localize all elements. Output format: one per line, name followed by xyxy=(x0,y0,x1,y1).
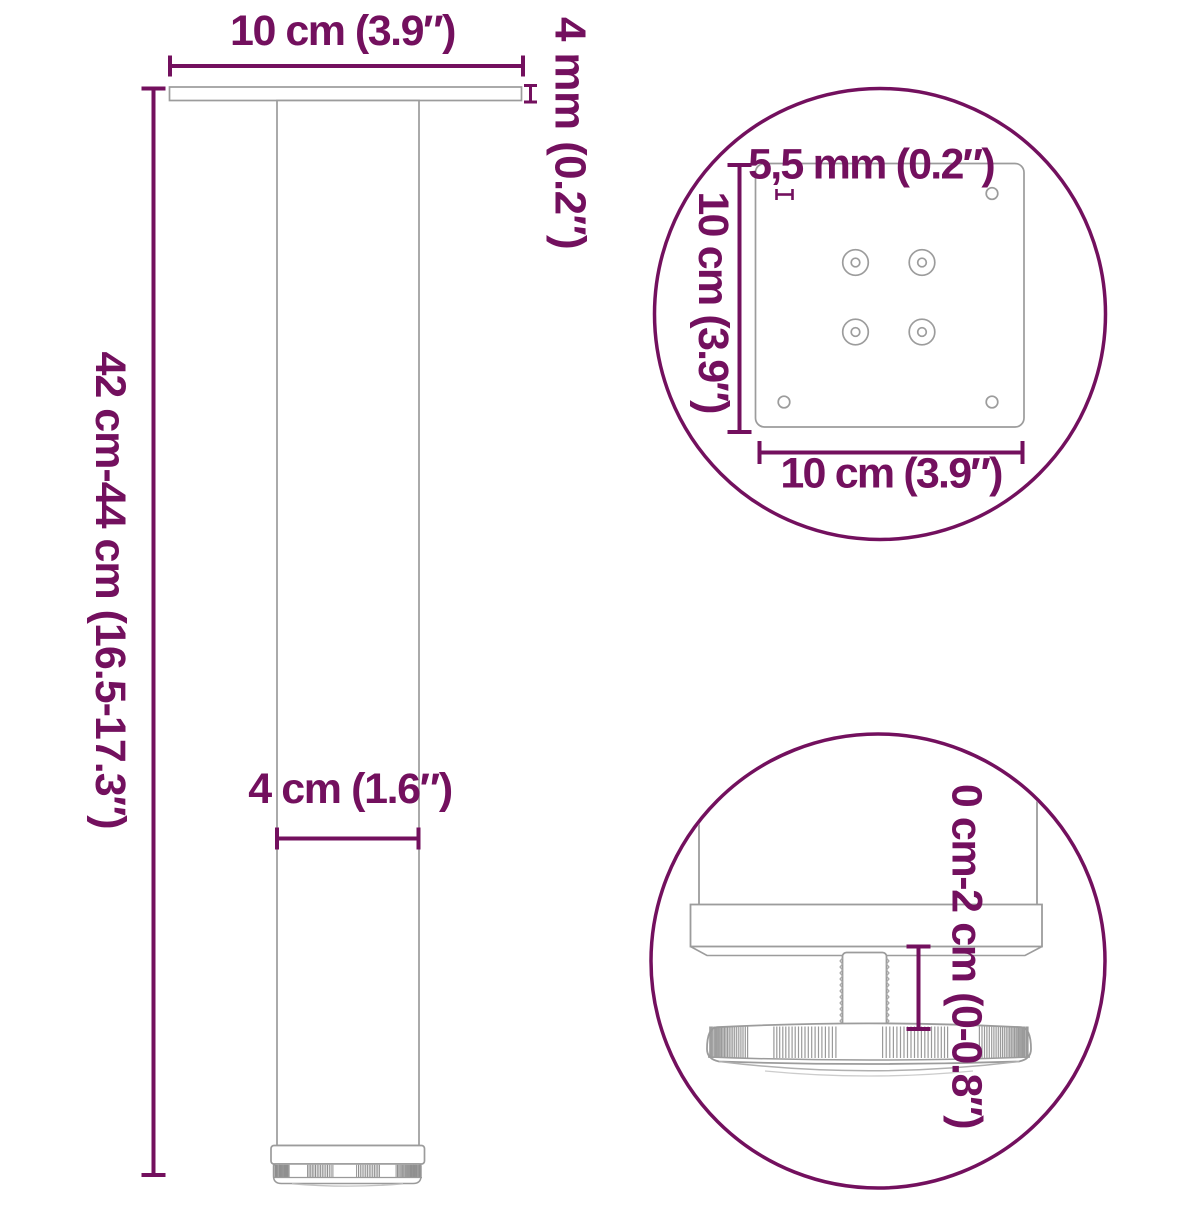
svg-text:0 cm-2 cm (0-0.8″): 0 cm-2 cm (0-0.8″) xyxy=(943,784,991,1128)
svg-text:42 cm-44 cm (16.5-17.3″): 42 cm-44 cm (16.5-17.3″) xyxy=(86,351,134,828)
svg-text:4 mm (0.2″): 4 mm (0.2″) xyxy=(545,17,594,249)
svg-text:10 cm (3.9″): 10 cm (3.9″) xyxy=(230,7,455,55)
svg-text:10 cm (3.9″): 10 cm (3.9″) xyxy=(689,191,737,413)
svg-text:4 cm (1.6″): 4 cm (1.6″) xyxy=(248,765,452,813)
svg-text:5,5 mm (0.2″): 5,5 mm (0.2″) xyxy=(748,140,994,188)
svg-text:10 cm (3.9″): 10 cm (3.9″) xyxy=(780,450,1002,498)
